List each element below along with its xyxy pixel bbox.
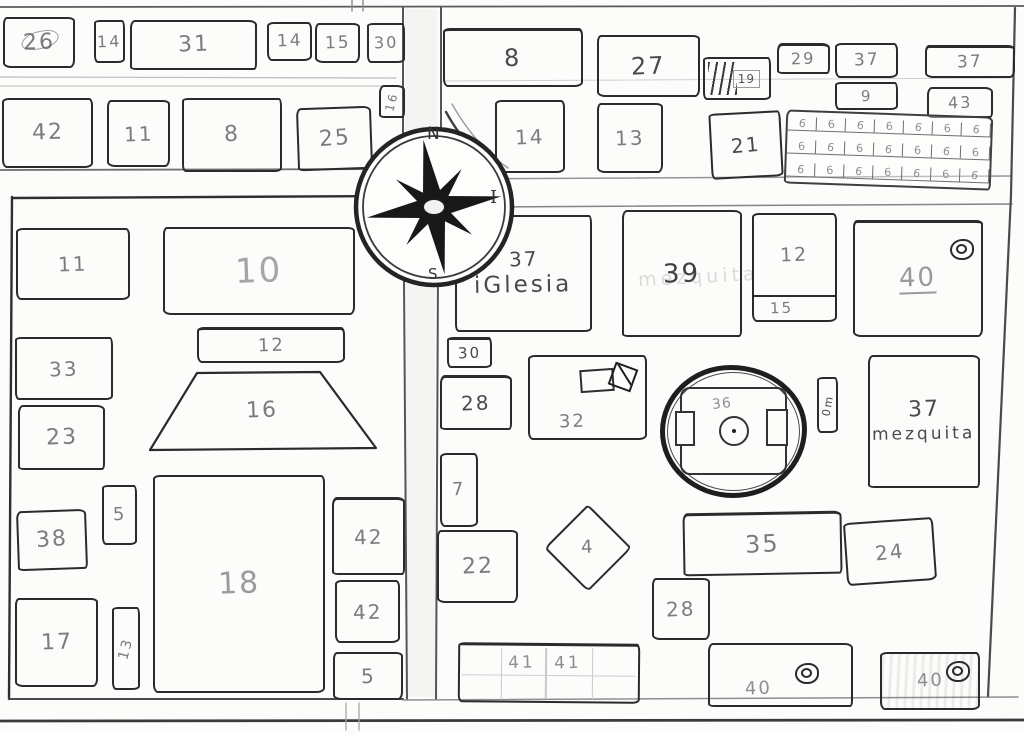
grid-cell: 6 — [933, 121, 962, 136]
block-25: 25 — [296, 106, 373, 172]
block-30a: 30 — [367, 23, 405, 63]
block-43-label: 43 — [948, 94, 973, 111]
block-22-label: 22 — [461, 555, 494, 578]
block-0m: 0m — [817, 377, 838, 433]
block-19: 19 — [703, 57, 771, 100]
grid-cell-label: 6 — [855, 118, 864, 132]
block-8b: 8 — [443, 28, 583, 87]
block-30b-label: 30 — [458, 345, 482, 361]
block-iglesia-label: 37 — [508, 248, 538, 269]
block-19-label: 19 — [733, 70, 760, 88]
block-36: 36 — [660, 365, 807, 498]
block-27: 27 — [597, 35, 700, 97]
block-42a: 42 — [2, 98, 93, 168]
block-28a: 28 — [440, 375, 512, 430]
grid-cell: 6 — [932, 145, 961, 160]
block-38-label: 38 — [35, 528, 68, 552]
spiral-doodle-icon — [946, 661, 970, 682]
block-9: 9 — [835, 82, 898, 110]
block-42b: 42 — [332, 497, 405, 575]
block-5b-label: 5 — [360, 666, 375, 687]
block-27-label: 27 — [631, 53, 666, 78]
grid-cell-label: 6 — [883, 142, 892, 156]
block-13v-label: 13 — [116, 636, 135, 661]
block-iglesia-sublabel: iGlesia — [474, 272, 573, 299]
grid-cell: 6 — [817, 117, 846, 132]
block-40c: 40 — [880, 652, 980, 710]
block-14b: 14 — [267, 22, 312, 61]
block-13a-label: 13 — [615, 127, 645, 148]
grid-cell-label: 6 — [913, 120, 922, 134]
grid-cell-label: 6 — [854, 165, 863, 179]
block-5a-label: 5 — [112, 506, 126, 524]
spiral-doodle-icon — [950, 239, 974, 260]
block-33-label: 33 — [49, 358, 79, 379]
block-42a-label: 42 — [31, 121, 64, 144]
block-42b-label: 42 — [353, 526, 383, 547]
stadium-goal-west — [675, 411, 695, 446]
block-37a-label: 37 — [853, 52, 879, 70]
grid-cell-label: 6 — [913, 144, 921, 158]
grid-cell: 6 — [874, 142, 903, 157]
block-31: 31 — [130, 20, 257, 70]
block-29-label: 29 — [791, 51, 816, 68]
block-40a: 40 — [853, 220, 983, 337]
block-13v: 13 — [112, 607, 140, 690]
block-5b: 5 — [333, 652, 403, 700]
block-15-label: 15 — [770, 301, 794, 317]
block-iglesia: 37iGlesia — [455, 215, 592, 332]
block-32-label: 32 — [558, 413, 586, 432]
map-blocks-layer: 2614311415301642118258271929373794314132… — [0, 0, 1024, 734]
stadium-center-dot — [732, 429, 736, 433]
block-24-label: 24 — [874, 540, 905, 563]
grid-cell-label: 6 — [825, 140, 834, 154]
block-7-label: 7 — [452, 481, 466, 499]
block-16v-label: 16 — [384, 91, 401, 113]
block-11a-label: 11 — [123, 123, 153, 144]
block-18: 18 — [153, 475, 325, 693]
block-37b: 37 — [925, 45, 1015, 78]
block-35: 35 — [682, 511, 842, 577]
grid-cell-label: 6 — [943, 121, 951, 135]
block-26: 26 — [3, 17, 75, 68]
block-mezquita-sublabel: mezquita — [872, 424, 976, 444]
block-4: 4 — [544, 504, 632, 592]
block-12w: 12 — [197, 327, 345, 363]
block-32: 32 — [528, 355, 647, 440]
block-10-label: 10 — [235, 253, 283, 289]
block-43: 43 — [927, 87, 993, 118]
block-41-label: 41 — [508, 652, 536, 673]
grid-cell: 6 — [786, 163, 815, 178]
grid-cell: 6 — [962, 122, 991, 137]
block-40b-label: 40 — [745, 680, 773, 699]
block-42c: 42 — [335, 580, 400, 643]
block-12e-label: 12 — [780, 245, 809, 265]
grid-divider — [501, 648, 503, 699]
block-40b: 40 — [708, 643, 853, 707]
block-17-label: 17 — [40, 631, 73, 654]
block-25-label: 25 — [318, 126, 351, 150]
block-grid6: 666666666666666666666 — [784, 109, 993, 190]
block-29: 29 — [777, 43, 830, 74]
block-9-label: 9 — [860, 88, 872, 103]
block-16t: 16 — [148, 371, 376, 450]
block-22: 22 — [437, 530, 518, 603]
grid-cell-label: 6 — [971, 146, 979, 160]
block-30a-label: 30 — [374, 35, 399, 52]
block-15a: 15 — [315, 23, 360, 63]
grid-cell: 6 — [961, 146, 990, 161]
spiral-doodle-icon — [795, 663, 819, 684]
block-41: 4141 — [458, 642, 641, 704]
grid-cell: 6 — [873, 166, 902, 181]
block-8b-label: 8 — [504, 46, 522, 71]
grid-cell: 6 — [844, 165, 873, 180]
grid-cell-label: 6 — [941, 144, 950, 158]
block-40a-label: 40 — [899, 264, 937, 294]
grid-divider — [545, 648, 547, 699]
block-13a: 13 — [597, 103, 663, 173]
stadium-center-circle — [719, 416, 749, 446]
block-11b: 11 — [16, 228, 130, 300]
block-14a-label: 14 — [97, 33, 122, 50]
grid-divider — [462, 674, 636, 677]
grid-cell: 6 — [815, 164, 844, 179]
grid-cell-label: 6 — [825, 164, 833, 178]
block-5a: 5 — [102, 485, 137, 545]
block-30b: 30 — [447, 337, 492, 368]
block-4-label: 4 — [581, 539, 595, 557]
grid-cell: 6 — [902, 167, 931, 182]
block-24: 24 — [843, 517, 937, 586]
erased-faint-label: mezquita — [638, 263, 760, 291]
grid-cell: 6 — [904, 120, 933, 135]
grid-cell: 6 — [846, 118, 875, 133]
grid-cell: 6 — [788, 116, 817, 131]
grid-cell-label: 6 — [855, 142, 863, 156]
block-28a-label: 28 — [461, 392, 491, 413]
block-7: 7 — [440, 453, 478, 527]
grid-cell: 6 — [845, 141, 874, 156]
block-mezquita-label: 37 — [908, 399, 941, 422]
grid-cell: 6 — [875, 119, 904, 134]
block-28b-label: 28 — [666, 598, 696, 619]
block-14c: 14 — [495, 100, 565, 173]
block-14c-label: 14 — [515, 126, 545, 147]
block-16v: 16 — [379, 85, 405, 118]
block-11a: 11 — [107, 100, 170, 167]
block-42c-label: 42 — [352, 601, 382, 622]
grid-divider — [591, 648, 593, 699]
block-26-label: 26 — [23, 31, 56, 54]
block-mezquita: 37mezquita — [868, 355, 980, 488]
block-15a-label: 15 — [324, 34, 350, 52]
block-31-label: 31 — [177, 33, 210, 56]
block-divider: 15 — [754, 295, 835, 320]
block-33: 33 — [15, 337, 113, 400]
block-23: 23 — [18, 405, 105, 470]
block-11b-label: 11 — [58, 253, 88, 274]
block-8a-label: 8 — [224, 124, 241, 147]
grid-cell-label: 6 — [797, 140, 805, 154]
grid-cell: 6 — [787, 139, 816, 154]
block-10: 10 — [163, 227, 355, 315]
grid-cell-label: 6 — [797, 116, 806, 130]
block-0m-label: 0m — [820, 393, 835, 416]
grid-cell: 6 — [816, 140, 845, 155]
block-21-label: 21 — [730, 134, 761, 156]
block-40c-label: 40 — [916, 672, 944, 691]
grid-cell: 6 — [931, 168, 960, 183]
hand-drawn-map: 2614311415301642118258271929373794314132… — [0, 0, 1024, 734]
block-17: 17 — [15, 598, 98, 687]
block-8a: 8 — [182, 98, 282, 172]
grid-cell-label: 6 — [941, 168, 949, 182]
block-14a: 14 — [94, 20, 125, 63]
grid-cell: 6 — [903, 143, 932, 158]
block-16t-label: 16 — [246, 399, 279, 422]
block-35-label: 35 — [745, 531, 781, 557]
grid-cell-label: 6 — [912, 167, 921, 181]
block-28b: 28 — [652, 578, 710, 640]
block-37b-label: 37 — [957, 53, 983, 71]
block-39: 39mezquita — [622, 210, 742, 337]
grid-cell-label: 6 — [883, 166, 891, 180]
block-23-label: 23 — [45, 426, 78, 449]
block-38: 38 — [16, 509, 88, 571]
block-37a: 37 — [835, 43, 898, 78]
block-21: 21 — [708, 110, 783, 180]
grid-cell-label: 6 — [971, 122, 980, 136]
block-12e: 1215 — [752, 213, 837, 322]
block-36-label: 36 — [711, 395, 732, 413]
grid-cell: 6 — [960, 169, 989, 184]
stadium-goal-east — [766, 409, 788, 446]
grid-cell-label: 6 — [969, 169, 978, 183]
block-12w-label: 12 — [257, 336, 285, 355]
grid-cell-label: 6 — [885, 119, 893, 133]
block-41-label: 41 — [554, 653, 582, 674]
sketch-object-icon — [580, 369, 636, 395]
block-18-label: 18 — [217, 568, 260, 599]
grid-cell-label: 6 — [827, 117, 835, 131]
grid-cell-label: 6 — [796, 163, 805, 177]
block-14b-label: 14 — [276, 33, 302, 51]
